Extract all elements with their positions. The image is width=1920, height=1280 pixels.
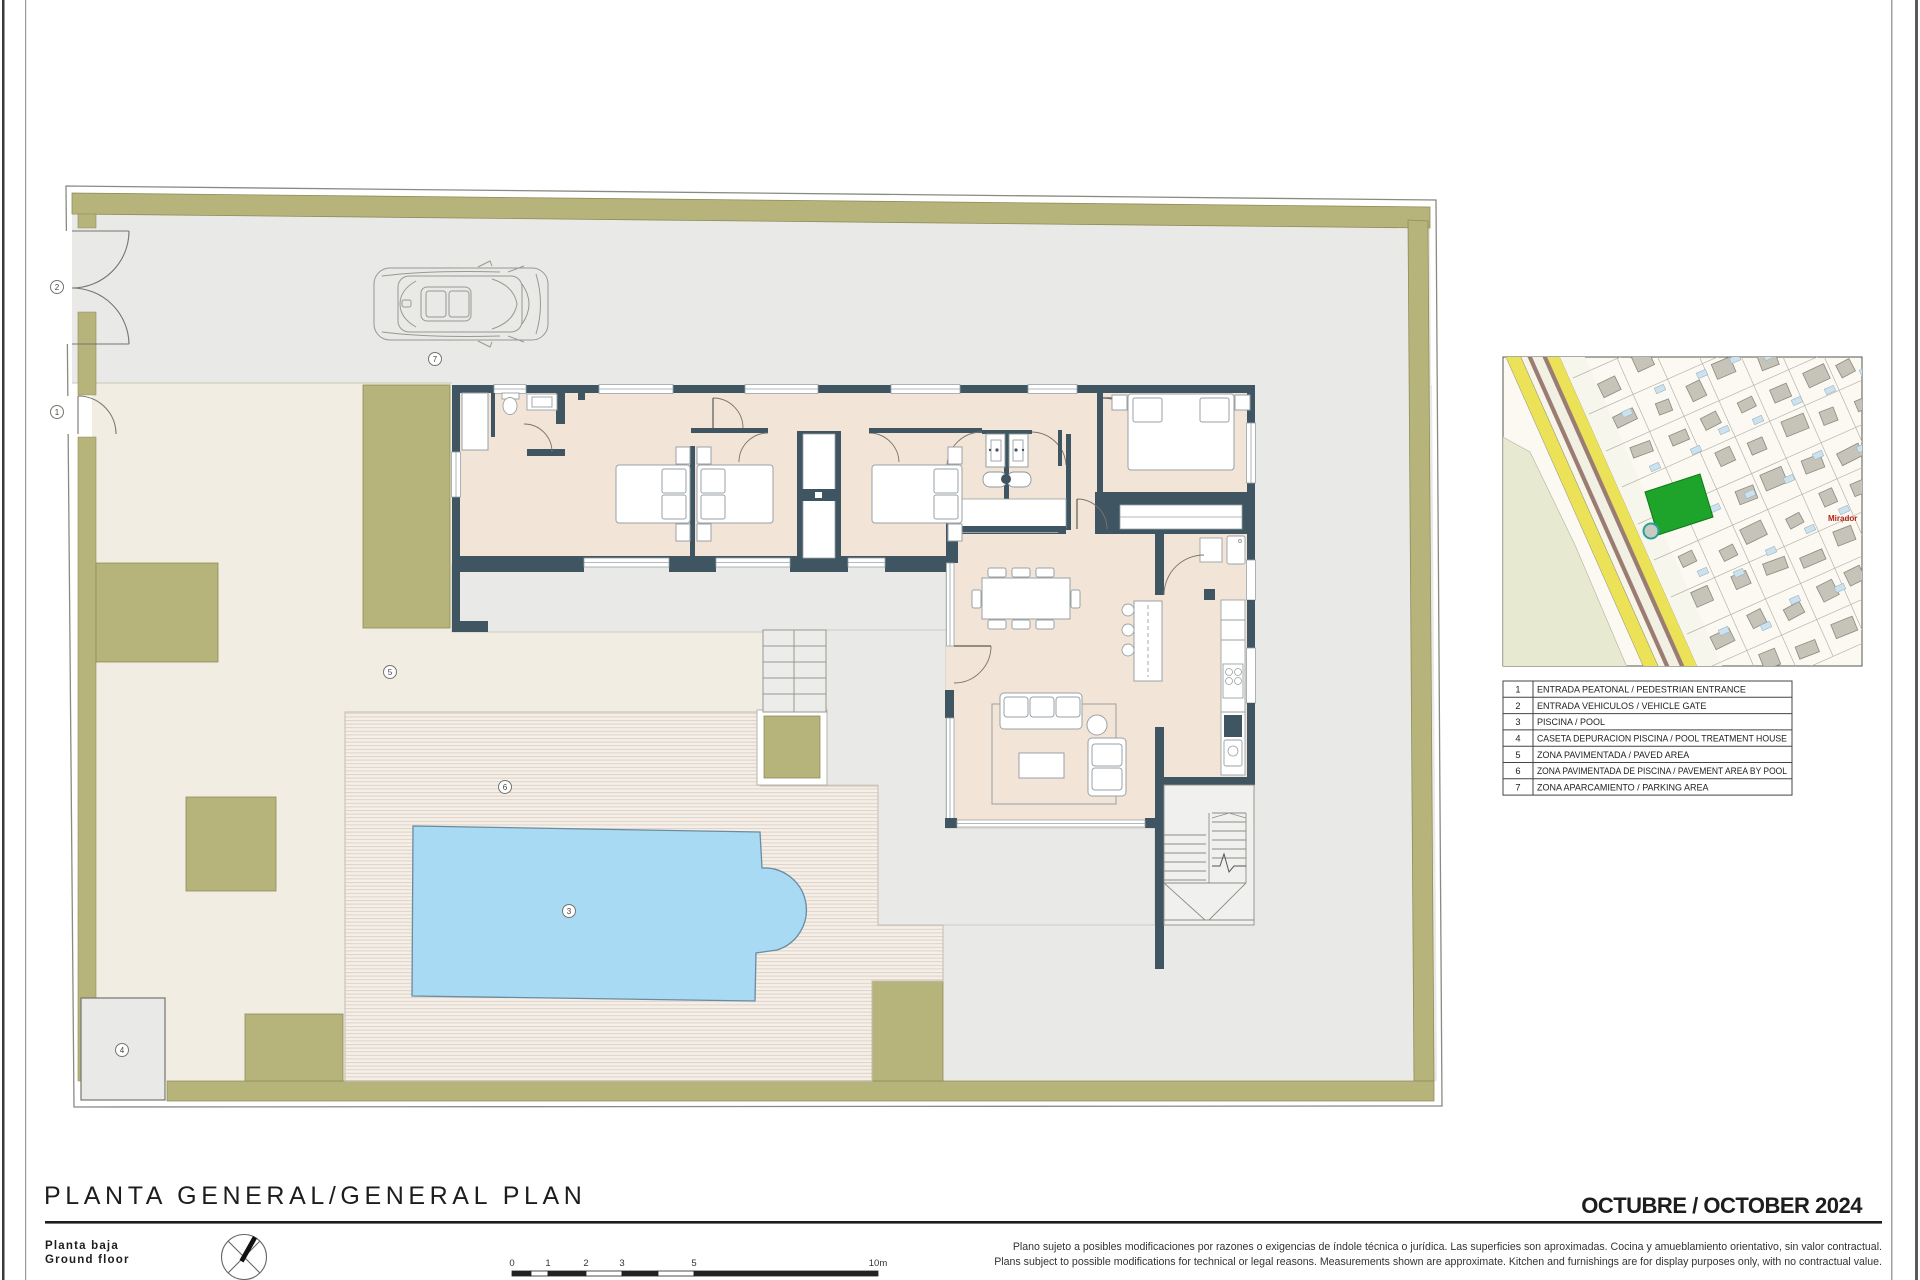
svg-text:ZONA PAVIMENTADA / PAVED AREA: ZONA PAVIMENTADA / PAVED AREA [1537, 750, 1689, 760]
svg-text:3: 3 [567, 907, 572, 916]
svg-text:Plans subject to possible modi: Plans subject to possible modifications … [994, 1256, 1882, 1268]
svg-text:6: 6 [1515, 766, 1520, 776]
svg-text:5: 5 [1515, 750, 1520, 760]
svg-text:5: 5 [691, 1258, 696, 1269]
svg-text:2: 2 [583, 1258, 588, 1269]
svg-text:6: 6 [503, 783, 508, 792]
svg-text:Ground floor: Ground floor [45, 1254, 130, 1266]
svg-text:ENTRADA PEATONAL / PEDESTRIAN: ENTRADA PEATONAL / PEDESTRIAN ENTRANCE [1537, 685, 1746, 695]
svg-text:ENTRADA VEHICULOS / VEHICLE GA: ENTRADA VEHICULOS / VEHICLE GATE [1537, 701, 1706, 711]
svg-text:Plano sujeto a posibles modifi: Plano sujeto a posibles modificaciones p… [1013, 1241, 1882, 1253]
svg-text:2: 2 [55, 283, 60, 292]
svg-text:10m: 10m [869, 1258, 888, 1269]
svg-text:1: 1 [1515, 685, 1520, 695]
svg-text:Mirạdor: Mirạdor [1828, 514, 1857, 523]
svg-text:2: 2 [1515, 701, 1520, 711]
svg-text:ZONA PAVIMENTADA DE PISCINA /: ZONA PAVIMENTADA DE PISCINA / PAVEMENT A… [1537, 766, 1787, 776]
svg-text:PISCINA / POOL: PISCINA / POOL [1537, 717, 1605, 727]
svg-text:4: 4 [120, 1046, 125, 1055]
svg-text:PLANTA GENERAL/GENERAL PLAN: PLANTA GENERAL/GENERAL PLAN [44, 1182, 586, 1210]
svg-text:OCTUBRE / OCTOBER 2024: OCTUBRE / OCTOBER 2024 [1581, 1193, 1863, 1218]
svg-text:Planta baja: Planta baja [45, 1240, 119, 1252]
svg-text:0: 0 [509, 1258, 514, 1269]
svg-text:ZONA APARCAMIENTO / PARKING AR: ZONA APARCAMIENTO / PARKING AREA [1537, 782, 1709, 792]
svg-text:7: 7 [433, 355, 438, 364]
svg-text:5: 5 [388, 668, 393, 677]
svg-text:CASETA DEPURACION PISCINA / PO: CASETA DEPURACION PISCINA / POOL TREATME… [1537, 734, 1787, 744]
svg-text:1: 1 [545, 1258, 550, 1269]
svg-text:1: 1 [55, 408, 60, 417]
svg-text:4: 4 [1515, 734, 1520, 744]
svg-text:3: 3 [1515, 717, 1520, 727]
svg-text:7: 7 [1515, 782, 1520, 792]
svg-text:3: 3 [619, 1258, 624, 1269]
